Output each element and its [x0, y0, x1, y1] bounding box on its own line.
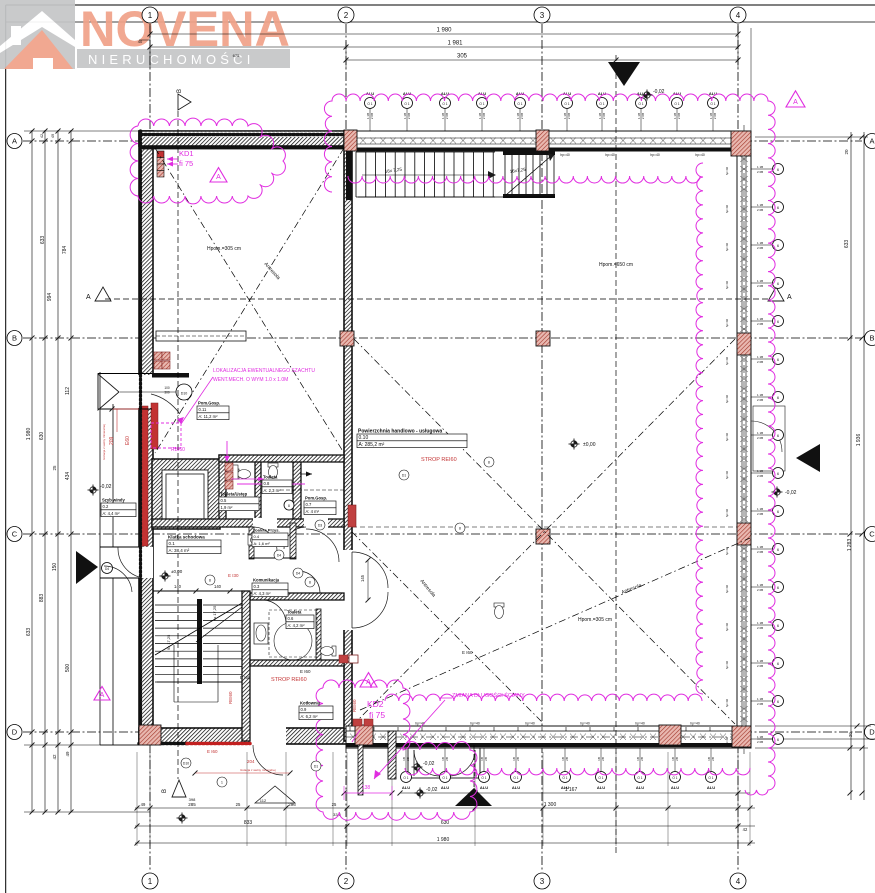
- svg-text:0.8: 0.8: [264, 481, 270, 486]
- svg-text:6: 6: [777, 624, 779, 628]
- svg-text:O 1: O 1: [403, 776, 408, 780]
- svg-text:C: C: [869, 530, 875, 539]
- svg-text:0.9: 0.9: [301, 707, 307, 712]
- svg-text:KD1: KD1: [179, 149, 194, 158]
- svg-text:RBI60: RBI60: [171, 447, 185, 453]
- svg-text:hp=40: hp=40: [650, 153, 660, 157]
- svg-text:2 0B: 2 0B: [757, 512, 763, 516]
- svg-text:WENT.MECH. O WYM 1.0 x 1.0M: WENT.MECH. O WYM 1.0 x 1.0M: [213, 377, 288, 383]
- svg-text:O 1: O 1: [564, 102, 569, 106]
- svg-text:E I60: E I60: [240, 675, 251, 680]
- svg-text:Hpom.=305 cm: Hpom.=305 cm: [207, 246, 241, 252]
- svg-text:25: 25: [52, 465, 57, 471]
- svg-text:112: 112: [260, 798, 267, 803]
- svg-text:1 1B: 1 1B: [757, 545, 763, 549]
- svg-text:D: D: [869, 728, 875, 737]
- svg-text:6: 6: [777, 282, 779, 286]
- svg-text:O 1: O 1: [637, 776, 642, 780]
- svg-text:±0,00: ±0,00: [583, 442, 596, 448]
- svg-text:8: 8: [309, 581, 311, 585]
- svg-text:-0,02: -0,02: [423, 761, 435, 767]
- svg-text:1 1B: 1 1B: [757, 165, 763, 169]
- svg-text:300: 300: [164, 391, 170, 395]
- svg-text:9x 17,25: 9x 17,25: [212, 605, 217, 621]
- svg-text:ALU: ALU: [561, 785, 569, 790]
- svg-text:1 1B: 1 1B: [757, 317, 763, 321]
- svg-text:-0,02: -0,02: [426, 787, 438, 793]
- svg-text:1 1B: 1 1B: [757, 507, 763, 511]
- svg-text:A: A: [100, 692, 105, 699]
- svg-text:Pom.Gosp.: Pom.Gosp.: [305, 495, 327, 500]
- svg-text:hp=40: hp=40: [725, 432, 729, 441]
- svg-text:C: C: [12, 530, 18, 539]
- svg-text:49: 49: [141, 802, 146, 807]
- svg-text:4: 4: [736, 11, 741, 20]
- svg-text:NIERUCHOMOŚCI: NIERUCHOMOŚCI: [88, 52, 255, 67]
- svg-text:2 0B: 2 0B: [520, 113, 524, 119]
- svg-text:4: 4: [736, 877, 741, 886]
- svg-text:Toaleta Przys.: Toaleta Przys.: [253, 527, 280, 532]
- svg-text:O 1: O 1: [599, 102, 604, 106]
- svg-text:833: 833: [244, 820, 253, 826]
- svg-text:633: 633: [26, 628, 32, 637]
- svg-text:STROP REI60: STROP REI60: [271, 677, 307, 683]
- svg-text:2 0B: 2 0B: [677, 113, 681, 119]
- svg-text:25: 25: [236, 802, 241, 807]
- svg-text:285: 285: [188, 802, 196, 807]
- svg-text:2B: 2B: [445, 757, 449, 761]
- svg-text:A: 4,4 m²: A: 4,4 m²: [103, 511, 121, 516]
- svg-text:0.10: 0.10: [359, 435, 369, 441]
- svg-text:O 1: O 1: [598, 776, 603, 780]
- svg-text:B: B: [177, 89, 183, 93]
- svg-text:O 1: O 1: [513, 776, 518, 780]
- svg-text:Klatka schodowa: Klatka schodowa: [168, 534, 205, 539]
- svg-text:2B: 2B: [640, 757, 644, 761]
- svg-text:A: A: [787, 294, 792, 301]
- svg-text:1 980: 1 980: [436, 28, 452, 34]
- svg-text:2B: 2B: [675, 757, 679, 761]
- svg-text:1 1B: 1 1B: [757, 279, 763, 283]
- svg-text:Toaleta: Toaleta: [287, 609, 302, 614]
- svg-text:-0,02: -0,02: [653, 89, 665, 95]
- svg-text:A: A: [793, 99, 798, 106]
- svg-text:±0,00: ±0,00: [171, 569, 183, 574]
- svg-text:ALU: ALU: [707, 785, 715, 790]
- svg-text:A: 4,2 m²: A: 4,2 m²: [288, 623, 306, 628]
- svg-text:2 0B: 2 0B: [713, 113, 717, 119]
- svg-text:ALU: ALU: [597, 785, 605, 790]
- svg-text:Hpom.=305 cm: Hpom.=305 cm: [578, 617, 612, 623]
- svg-text:0.3: 0.3: [254, 584, 260, 589]
- svg-text:hp=40: hp=40: [725, 356, 729, 365]
- svg-text:0.2: 0.2: [103, 504, 109, 509]
- svg-text:A: A: [216, 174, 221, 181]
- svg-text:2 0B: 2 0B: [757, 664, 763, 668]
- svg-text:O 1: O 1: [672, 776, 677, 780]
- svg-text:2B: 2B: [565, 757, 569, 761]
- svg-text:Toaleta/Ustęp: Toaleta/Ustęp: [220, 491, 248, 496]
- svg-text:O 1: O 1: [367, 102, 372, 106]
- svg-text:1 980: 1 980: [437, 837, 450, 843]
- svg-text:0.7: 0.7: [306, 502, 312, 507]
- svg-text:9x 17,25: 9x 17,25: [166, 634, 171, 650]
- svg-text:1: 1: [148, 877, 153, 886]
- svg-text:2 0B: 2 0B: [407, 113, 411, 119]
- svg-text:2 0B: 2 0B: [602, 113, 606, 119]
- svg-text:140: 140: [174, 584, 182, 589]
- svg-text:2 0B: 2 0B: [757, 702, 763, 706]
- svg-text:305: 305: [457, 54, 468, 60]
- svg-text:A: A: [366, 679, 371, 686]
- svg-text:2 0B: 2 0B: [757, 474, 763, 478]
- svg-text:1 1B: 1 1B: [757, 621, 763, 625]
- svg-text:6: 6: [777, 244, 779, 248]
- svg-text:8: 8: [209, 579, 211, 583]
- svg-text:A: 1,6 m²: A: 1,6 m²: [254, 541, 271, 546]
- svg-text:ALU: ALU: [636, 785, 644, 790]
- svg-text:1: 1: [148, 11, 153, 20]
- svg-text:hp=40: hp=40: [725, 736, 729, 745]
- svg-text:6: 6: [777, 396, 779, 400]
- svg-text:hp=40: hp=40: [725, 470, 729, 479]
- svg-text:2 0B: 2 0B: [757, 322, 763, 326]
- svg-text:3: 3: [540, 11, 545, 20]
- svg-text:B: B: [869, 334, 874, 343]
- svg-text:500: 500: [65, 664, 71, 673]
- svg-text:E60: E60: [125, 436, 131, 445]
- svg-text:1 1B: 1 1B: [757, 735, 763, 739]
- svg-text:hp=40: hp=40: [525, 722, 535, 726]
- svg-text:145: 145: [360, 574, 365, 582]
- svg-text:D4: D4: [105, 567, 109, 571]
- svg-text:ALU: ALU: [480, 785, 488, 790]
- svg-text:A: 6,2 m²: A: 6,2 m²: [301, 714, 319, 719]
- svg-text:2 0B: 2 0B: [641, 113, 645, 119]
- svg-text:E I60: E I60: [300, 669, 311, 674]
- svg-text:O 1: O 1: [710, 102, 715, 106]
- svg-text:2 0B: 2 0B: [757, 170, 763, 174]
- svg-text:1 300: 1 300: [544, 802, 557, 808]
- svg-text:633: 633: [40, 236, 46, 245]
- svg-text:hp=40: hp=40: [560, 153, 570, 157]
- svg-text:O 1: O 1: [638, 102, 643, 106]
- svg-text:784: 784: [62, 246, 68, 255]
- svg-text:20: 20: [848, 732, 853, 737]
- svg-text:3: 3: [540, 877, 545, 886]
- svg-text:1 981: 1 981: [447, 41, 463, 47]
- svg-text:2 0B: 2 0B: [757, 626, 763, 630]
- svg-text:2 0B: 2 0B: [567, 113, 571, 119]
- svg-text:112: 112: [65, 387, 71, 395]
- svg-text:49: 49: [65, 751, 70, 757]
- svg-text:630: 630: [441, 820, 450, 826]
- svg-text:150: 150: [52, 563, 58, 572]
- svg-text:2B: 2B: [711, 757, 715, 761]
- svg-text:D: D: [12, 728, 18, 737]
- svg-text:20: 20: [844, 149, 849, 155]
- svg-text:B: B: [12, 334, 17, 343]
- svg-text:hp=40: hp=40: [725, 698, 729, 707]
- svg-text:2 0B: 2 0B: [757, 360, 763, 364]
- svg-text:6: 6: [777, 510, 779, 514]
- svg-text:E I30: E I30: [228, 573, 239, 578]
- svg-text:2 0B: 2 0B: [757, 208, 763, 212]
- svg-text:hp=40: hp=40: [725, 394, 729, 403]
- svg-text:Hpom.=650 cm: Hpom.=650 cm: [599, 262, 633, 268]
- svg-text:1 1B: 1 1B: [757, 393, 763, 397]
- svg-text:Komunikacja: Komunikacja: [253, 577, 280, 582]
- svg-text:2 0B: 2 0B: [482, 113, 486, 119]
- svg-text:2B: 2B: [516, 757, 520, 761]
- svg-text:hp=40: hp=40: [635, 722, 645, 726]
- svg-text:1 1B: 1 1B: [757, 469, 763, 473]
- svg-text:140: 140: [214, 584, 222, 589]
- svg-text:D1: D1: [314, 765, 318, 769]
- svg-text:O 1: O 1: [674, 102, 679, 106]
- svg-text:Izolacja z wełny mineralnej: Izolacja z wełny mineralnej: [240, 768, 276, 772]
- svg-text:D3: D3: [318, 524, 322, 528]
- svg-text:1: 1: [221, 781, 223, 785]
- svg-text:O 1: O 1: [517, 102, 522, 106]
- svg-text:8: 8: [459, 527, 461, 531]
- svg-text:B: B: [162, 789, 168, 793]
- svg-text:ZMIANA DŁUGOŚCI ŚCIANY: ZMIANA DŁUGOŚCI ŚCIANY: [452, 691, 525, 699]
- svg-text:A: A: [86, 294, 91, 301]
- svg-text:2 0B: 2 0B: [757, 740, 763, 744]
- svg-text:A: A: [869, 137, 874, 146]
- svg-text:2 0B: 2 0B: [445, 113, 449, 119]
- svg-text:2 0B: 2 0B: [757, 246, 763, 250]
- svg-text:E I60: E I60: [207, 749, 218, 754]
- svg-text:1 1B: 1 1B: [757, 431, 763, 435]
- svg-text:1 980: 1 980: [26, 428, 32, 441]
- svg-text:hp=40: hp=40: [725, 280, 729, 289]
- svg-text:1 1B: 1 1B: [757, 697, 763, 701]
- svg-text:2B: 2B: [406, 757, 410, 761]
- svg-text:D10: D10: [183, 762, 189, 766]
- svg-text:42: 42: [52, 754, 57, 760]
- svg-text:STROP REI60: STROP REI60: [421, 457, 457, 463]
- svg-text:hp=40: hp=40: [725, 622, 729, 631]
- svg-text:hp=40: hp=40: [725, 318, 729, 327]
- svg-text:hp=40: hp=40: [725, 660, 729, 669]
- svg-text:0.4: 0.4: [254, 534, 260, 539]
- svg-text:Pom.Gosp.: Pom.Gosp.: [198, 400, 220, 405]
- svg-text:100: 100: [164, 386, 170, 390]
- svg-text:994: 994: [47, 293, 53, 302]
- svg-text:O 1: O 1: [562, 776, 567, 780]
- svg-text:8: 8: [488, 461, 490, 465]
- svg-text:REI60: REI60: [352, 699, 357, 712]
- svg-text:883: 883: [39, 594, 45, 603]
- svg-text:1 1B: 1 1B: [757, 355, 763, 359]
- svg-text:A: 38,4 m²: A: 38,4 m²: [169, 548, 190, 553]
- svg-text:1 1B: 1 1B: [757, 241, 763, 245]
- svg-text:1,9 m²: 1,9 m²: [221, 505, 233, 510]
- svg-text:NOVENA: NOVENA: [80, 1, 290, 57]
- svg-text:Izolacja z wełny mineralnej: Izolacja z wełny mineralnej: [102, 424, 106, 460]
- svg-text:6: 6: [777, 586, 779, 590]
- svg-text:A: 285,2 m²: A: 285,2 m²: [359, 442, 385, 448]
- svg-text:2B: 2B: [601, 757, 605, 761]
- svg-text:ALU: ALU: [671, 785, 679, 790]
- svg-text:hp=40: hp=40: [605, 153, 615, 157]
- svg-text:6: 6: [777, 320, 779, 324]
- svg-text:1 1B: 1 1B: [757, 583, 763, 587]
- svg-text:398: 398: [189, 797, 196, 802]
- svg-text:630: 630: [39, 432, 45, 441]
- svg-text:Powierzchnia handlowo - usługo: Powierzchnia handlowo - usługowa: [358, 428, 442, 434]
- svg-text:6: 6: [777, 472, 779, 476]
- svg-text:6: 6: [777, 168, 779, 172]
- svg-text:0.6: 0.6: [288, 616, 294, 621]
- svg-text:6: 6: [777, 700, 779, 704]
- svg-text:2 0B: 2 0B: [757, 550, 763, 554]
- svg-text:1 936: 1 936: [856, 434, 862, 447]
- svg-text:-0,02: -0,02: [785, 490, 797, 496]
- svg-text:209: 209: [109, 436, 115, 445]
- svg-text:hp=40: hp=40: [725, 166, 729, 175]
- svg-text:2 0B: 2 0B: [757, 284, 763, 288]
- svg-text:D1: D1: [402, 474, 406, 478]
- svg-text:A: 4,3 m²: A: 4,3 m²: [254, 591, 272, 596]
- svg-text:A: 4 m²: A: 4 m²: [306, 509, 320, 514]
- svg-text:ALU: ALU: [709, 91, 717, 96]
- svg-text:D4: D4: [277, 554, 281, 558]
- svg-text:-0,02: -0,02: [100, 484, 112, 490]
- svg-text:REI60: REI60: [228, 691, 233, 704]
- svg-text:D4: D4: [296, 572, 300, 576]
- svg-text:633: 633: [844, 240, 850, 249]
- svg-text:hp=40: hp=40: [470, 722, 480, 726]
- svg-text:42: 42: [743, 827, 748, 832]
- svg-text:D10: D10: [181, 392, 188, 396]
- svg-text:ALU: ALU: [441, 785, 449, 790]
- svg-text:O 1: O 1: [708, 776, 713, 780]
- svg-text:O 1: O 1: [404, 102, 409, 106]
- svg-text:A: A: [12, 137, 17, 146]
- svg-text:6: 6: [777, 206, 779, 210]
- svg-text:hp=40: hp=40: [725, 584, 729, 593]
- svg-text:0.1: 0.1: [169, 541, 176, 546]
- svg-text:Kotłownia: Kotłownia: [300, 700, 321, 705]
- svg-text:434: 434: [65, 472, 71, 481]
- svg-text:Szyb windy: Szyb windy: [102, 497, 125, 502]
- svg-text:O 1: O 1: [479, 102, 484, 106]
- svg-text:hp=40: hp=40: [580, 722, 590, 726]
- svg-text:49: 49: [51, 134, 55, 138]
- svg-text:LOKALIZACJA EWENTUALNEGO SZACH: LOKALIZACJA EWENTUALNEGO SZACHTU: [213, 368, 315, 374]
- svg-text:ALU: ALU: [402, 785, 410, 790]
- svg-text:KD2: KD2: [367, 699, 384, 709]
- svg-text:1 283: 1 283: [847, 539, 853, 552]
- svg-text:0.11: 0.11: [199, 407, 208, 412]
- svg-text:675: 675: [233, 53, 240, 58]
- svg-text:1 1B: 1 1B: [757, 203, 763, 207]
- svg-text:E I60: E I60: [462, 650, 473, 655]
- svg-text:25: 25: [332, 802, 337, 807]
- svg-text:6: 6: [777, 738, 779, 742]
- svg-text:fi 75: fi 75: [179, 159, 193, 168]
- svg-text:2: 2: [344, 877, 349, 886]
- svg-text:6: 6: [777, 662, 779, 666]
- svg-text:O 1: O 1: [442, 776, 447, 780]
- svg-text:1 1B: 1 1B: [757, 659, 763, 663]
- svg-text:fi 75: fi 75: [369, 710, 385, 720]
- svg-text:0.5: 0.5: [221, 498, 227, 503]
- svg-text:hp=40: hp=40: [690, 722, 700, 726]
- svg-text:6: 6: [777, 358, 779, 362]
- svg-text:2 0B: 2 0B: [370, 113, 374, 119]
- svg-text:O 1: O 1: [481, 776, 486, 780]
- svg-text:2B: 2B: [484, 757, 488, 761]
- svg-text:hp=40: hp=40: [725, 508, 729, 517]
- svg-text:A: 11,2 m²: A: 11,2 m²: [199, 414, 219, 419]
- svg-text:138: 138: [362, 785, 371, 791]
- svg-text:6: 6: [777, 434, 779, 438]
- svg-text:2: 2: [344, 11, 349, 20]
- svg-text:hp=40: hp=40: [725, 546, 729, 555]
- svg-text:O 1: O 1: [442, 102, 447, 106]
- svg-text:2 0B: 2 0B: [757, 588, 763, 592]
- svg-text:Toaleta: Toaleta: [263, 474, 278, 479]
- svg-text:2 0B: 2 0B: [757, 398, 763, 402]
- svg-text:8: 8: [288, 504, 290, 508]
- svg-text:A: 2,3 m²: A: 2,3 m²: [264, 488, 282, 493]
- svg-text:204: 204: [247, 759, 255, 764]
- svg-text:hp=40: hp=40: [695, 153, 705, 157]
- svg-text:hp=40: hp=40: [725, 242, 729, 251]
- svg-text:hp=40: hp=40: [725, 204, 729, 213]
- svg-text:ALU: ALU: [512, 785, 520, 790]
- svg-text:42: 42: [40, 134, 44, 138]
- svg-text:6: 6: [777, 548, 779, 552]
- svg-text:2 0B: 2 0B: [757, 436, 763, 440]
